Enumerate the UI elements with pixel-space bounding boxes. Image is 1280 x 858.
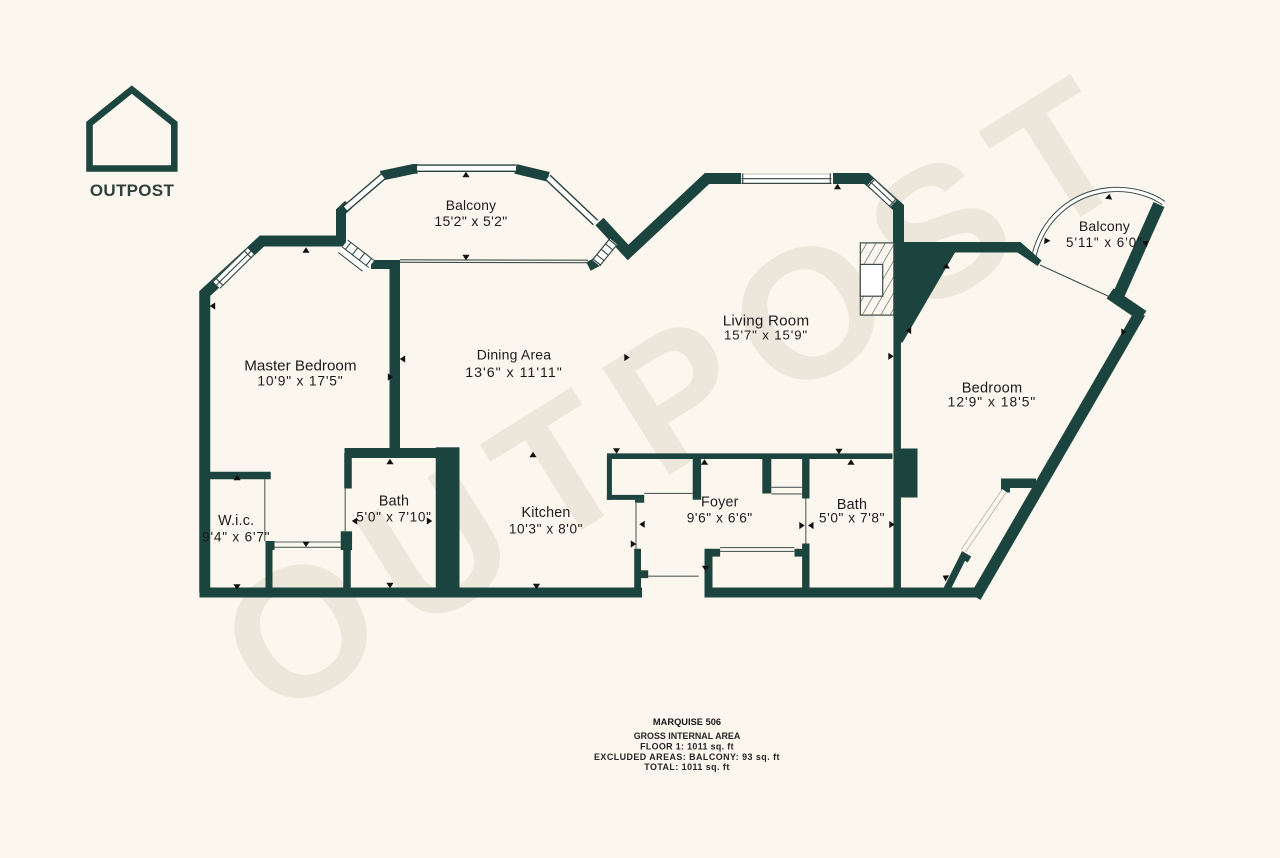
svg-text:MARQUISE 506: MARQUISE 506: [653, 717, 721, 727]
svg-text:Foyer: Foyer: [701, 495, 739, 511]
svg-text:15'7" x 15'9": 15'7" x 15'9": [724, 327, 808, 342]
svg-text:Kitchen: Kitchen: [521, 505, 570, 521]
svg-text:5'0" x 7'8": 5'0" x 7'8": [819, 511, 885, 526]
svg-text:W.i.c.: W.i.c.: [218, 513, 254, 529]
svg-text:Balcony: Balcony: [446, 198, 496, 213]
svg-text:5'11" x 6'0": 5'11" x 6'0": [1066, 235, 1143, 250]
svg-text:OUTPOST: OUTPOST: [90, 181, 175, 200]
svg-text:9'6" x 6'6": 9'6" x 6'6": [687, 511, 753, 526]
svg-text:TOTAL: 1011 sq. ft: TOTAL: 1011 sq. ft: [644, 762, 730, 772]
svg-text:10'9" x 17'5": 10'9" x 17'5": [257, 374, 343, 389]
svg-text:Dining Area: Dining Area: [477, 346, 552, 362]
svg-text:15'2" x 5'2": 15'2" x 5'2": [434, 213, 507, 229]
svg-text:Balcony: Balcony: [1079, 218, 1130, 234]
svg-text:5'0" x 7'10": 5'0" x 7'10": [356, 509, 431, 524]
svg-text:Master Bedroom: Master Bedroom: [244, 358, 356, 375]
svg-text:12'9" x 18'5": 12'9" x 18'5": [948, 395, 1037, 410]
svg-text:Bath: Bath: [379, 493, 409, 509]
svg-text:13'6" x 11'11": 13'6" x 11'11": [465, 365, 563, 381]
svg-text:10'3" x 8'0": 10'3" x 8'0": [509, 522, 583, 537]
svg-text:9'4" x 6'7": 9'4" x 6'7": [202, 529, 270, 544]
svg-text:GROSS INTERNAL AREA: GROSS INTERNAL AREA: [634, 731, 741, 741]
svg-text:EXCLUDED AREAS: BALCONY: 93 sq: EXCLUDED AREAS: BALCONY: 93 sq. ft: [594, 752, 780, 762]
svg-text:FLOOR 1: 1011 sq. ft: FLOOR 1: 1011 sq. ft: [640, 741, 734, 751]
